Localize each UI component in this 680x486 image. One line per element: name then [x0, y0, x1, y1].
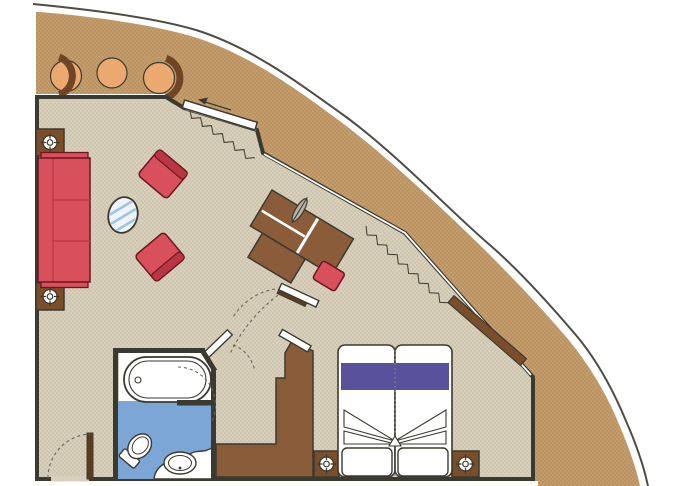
bed-runner: [341, 363, 449, 390]
bathroom-wall-right: [211, 369, 216, 479]
bathroom-wall-top: [113, 348, 205, 353]
bed-foot-cushion-right: [398, 448, 448, 476]
entry-door-leaf: [87, 433, 93, 479]
bathroom-door-leaf: [177, 400, 214, 406]
balcony-table: [97, 58, 127, 88]
sofa-group: [36, 129, 90, 310]
bed-foot-cushion-left: [342, 448, 392, 476]
floorplan-image: [0, 0, 680, 486]
floorplan-page: [0, 0, 680, 486]
bathroom: [113, 348, 216, 480]
sofa: [38, 158, 90, 282]
balcony-chair-right: [144, 63, 175, 94]
bathroom-wall-left: [113, 348, 118, 480]
sink-drain-icon: [179, 467, 182, 470]
